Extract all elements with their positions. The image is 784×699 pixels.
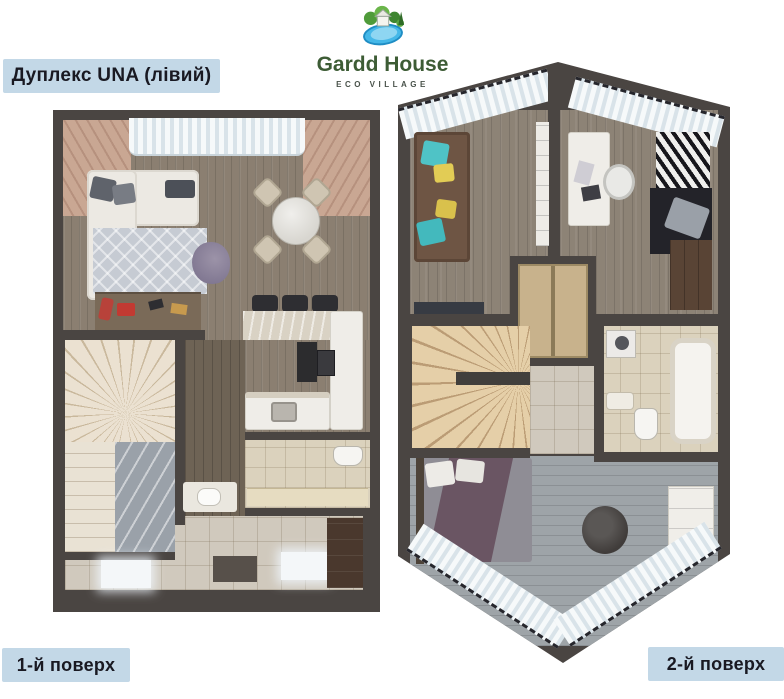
entry-wardrobe: [327, 518, 363, 588]
floor-2-label-badge: 2-й поверх: [648, 647, 784, 681]
wall-shelf-unit: [536, 122, 549, 246]
brand-logo: Gardd House ECO VILLAGE: [300, 4, 465, 89]
page: { "title_badge": { "label": "Дуплекс UNA…: [0, 0, 784, 699]
storage-marble-unit: [115, 442, 175, 552]
bar-stool: [312, 295, 338, 312]
toy-item: [170, 303, 187, 315]
plan-title: Дуплекс UNA (лівий): [12, 65, 212, 87]
wc-toilet: [197, 488, 221, 506]
bar-stool: [252, 295, 278, 312]
bar-stool: [282, 295, 308, 312]
kitchen-sink: [271, 402, 297, 422]
floor-2-label: 2-й поверх: [667, 654, 766, 675]
sofa-throw: [165, 180, 195, 198]
washer-door: [615, 336, 629, 350]
floor-plan-2: [398, 62, 730, 663]
kids-wardrobe: [670, 240, 712, 310]
floor-1-label: 1-й поверх: [17, 655, 116, 676]
plan-title-badge: Дуплекс UNA (лівий): [3, 59, 220, 93]
brand-name: Gardd House: [300, 53, 465, 77]
eco-village-logo-icon: [354, 4, 412, 46]
staircase-floor2: [412, 326, 530, 448]
sofa-pillow-gray: [112, 183, 137, 206]
striped-bedding: [656, 132, 710, 190]
wall-segment: [594, 326, 604, 462]
doormat: [213, 556, 257, 582]
area-rug: [93, 228, 207, 294]
brand-tagline: ECO VILLAGE: [300, 80, 465, 89]
floor-1-label-badge: 1-й поверх: [2, 648, 130, 682]
toilet-floor1: [333, 446, 363, 466]
yellow-pillow: [433, 163, 455, 183]
closet-shelves: [65, 442, 115, 552]
bathtub: [670, 338, 716, 444]
wall-segment: [594, 314, 730, 326]
stair-railing: [456, 372, 530, 385]
wall-segment: [63, 330, 205, 340]
oven: [317, 350, 335, 376]
wall-segment: [65, 552, 175, 560]
toilet-floor2: [634, 408, 658, 440]
armchair: [192, 242, 230, 284]
wall-segment: [245, 508, 370, 516]
yellow-pillow: [435, 199, 457, 220]
desk-chair: [603, 164, 635, 200]
staircase-floor1: [65, 340, 175, 442]
bath-sink: [606, 392, 634, 410]
red-toy-box: [117, 303, 135, 316]
bath-vanity: [247, 488, 368, 506]
wall-segment: [245, 432, 370, 440]
bed-pillow: [424, 460, 455, 488]
bed-pillow: [455, 459, 485, 484]
cooktop: [297, 342, 317, 382]
window-curtain-1: [129, 118, 305, 156]
floor-plan-1: [53, 110, 380, 612]
kitchen-bar-counter: [243, 311, 341, 340]
round-lounge-chair: [582, 506, 628, 554]
wall-segment: [594, 452, 730, 462]
entry-door-light-left: [101, 560, 151, 588]
wall-segment: [398, 314, 512, 326]
entry-door-light-right: [281, 552, 327, 580]
